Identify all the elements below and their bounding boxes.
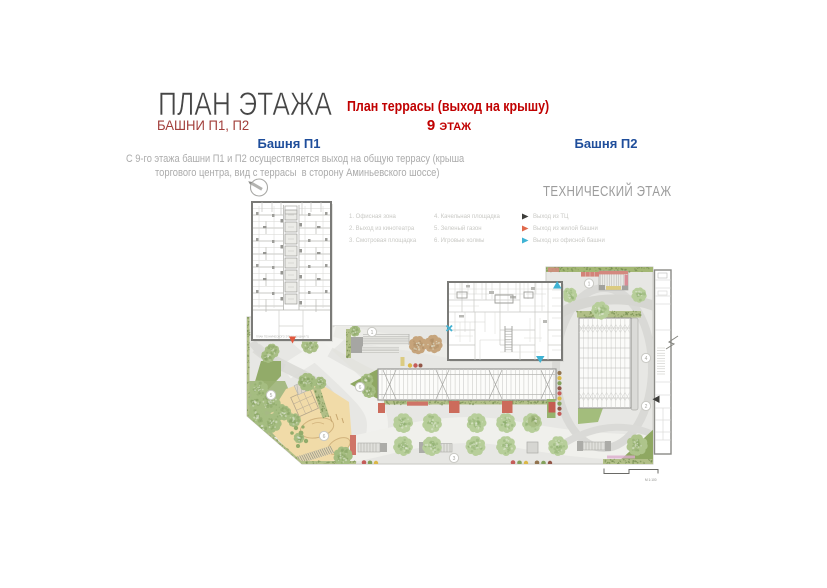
svg-text:4: 4 xyxy=(645,356,648,362)
svg-text:3: 3 xyxy=(453,456,456,462)
svg-text:М 1:100: М 1:100 xyxy=(645,478,657,482)
svg-text:1: 1 xyxy=(588,281,591,287)
svg-text:6: 6 xyxy=(359,385,362,391)
svg-text:5: 5 xyxy=(270,393,273,399)
svg-text:ПЛАН ТЕХНИЧЕСКОГО ЭТАЖА БАШНИ: ПЛАН ТЕХНИЧЕСКОГО ЭТАЖА БАШНИ П1 xyxy=(256,335,310,339)
svg-text:2: 2 xyxy=(645,404,648,410)
svg-text:6: 6 xyxy=(323,434,326,440)
svg-text:1: 1 xyxy=(371,330,374,336)
